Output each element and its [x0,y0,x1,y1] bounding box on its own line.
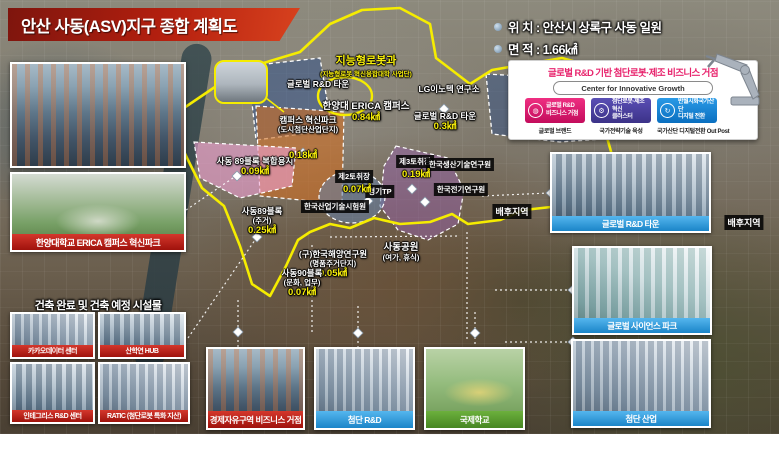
facility-photo-kakao: 카카오데이터 센터 [10,312,95,359]
label-kitech: 한국생산기술연구원 [426,158,494,171]
label-text: 캠퍼스 혁신파크 [279,115,336,125]
label-sub: (문화, 업무) [282,278,323,287]
area-row: 면 적 : 1.66㎢ [494,39,662,58]
location-row: 위 치 : 안산시 상록구 사동 일원 [494,17,662,36]
photo-caption: 글로벌 사이언스 파크 [574,318,710,333]
label-sub: (주거) [242,216,283,225]
vision-box-label: 글로벌 R&D 비즈니스 거점 [546,103,578,118]
photo-caption: 인테그리스 R&D 센터 [12,410,93,422]
economic-zone-photo: 경제자유구역 비즈니스 거점 [206,347,305,430]
vision-card: 글로벌 R&D 기반 첨단로봇·제조 비즈니스 거점 Center for In… [508,60,758,140]
advanced-rd-photo: 첨단 R&D [314,347,415,430]
harbor-photo [10,62,186,168]
vision-sublabel: 국가전략기술 육성 [591,126,651,135]
label-pit2-area: 0.07㎢ [343,181,371,195]
vision-sublabel: 글로벌 브랜드 [525,126,585,135]
label-robot-dept: 지능형로봇과 (지능형로봇 혁신융합대학 사업단) [320,52,412,78]
label-text: 지능형로봇과 [336,55,397,67]
photo-caption: 한양대학교 ERICA 캠퍼스 혁신파크 [12,234,184,250]
label-text: 사동90블록 [282,268,323,278]
photo-caption: 글로벌 R&D 타운 [552,216,709,231]
advanced-industry-photo: 첨단 산업 [571,339,711,428]
label-text: 글로벌 R&D 타운 [287,79,349,89]
photo-caption: 경제자유구역 비즈니스 거점 [208,411,303,428]
label-block90: 사동90블록 (문화, 업무) 0.07㎢ [282,268,323,299]
vision-sublabel: 국가산단 디지털전환 Out Post [657,126,717,135]
vision-box-label: 첨단로봇·제조혁신 클러스터 [612,99,648,122]
vision-box-label-line2: 디지털 전환 [678,114,705,120]
label-block89-res: 사동89블록 (주거) 0.25㎢ [242,206,283,237]
label-area: 0.3㎢ [414,121,476,132]
label-campus-park: 캠퍼스 혁신파크 (도시첨단산업단지) [278,115,338,134]
vision-card-badge: Center for Innovative Growth [553,81,713,95]
photo-caption: 국제학교 [426,411,523,428]
photo-caption: 첨단 산업 [573,411,709,426]
global-science-park-photo: 글로벌 사이언스 파크 [572,246,712,335]
international-school-photo: 국제학교 [424,347,525,430]
label-global-rd-town-nw: 글로벌 R&D 타운 [287,79,349,89]
label-text: 사동 89블록 복합용지 [217,156,294,166]
vision-box-global-rd: ◍ 글로벌 R&D 비즈니스 거점 [525,98,585,123]
global-rd-town-photo: 글로벌 R&D 타운 [550,152,711,233]
industrial-robot-icon [697,51,763,109]
label-pit3-area: 0.19㎢ [402,166,430,180]
label-keri: 한국전기연구원 [434,183,488,196]
label-sub: (명품주거단지) [299,259,367,268]
label-sub: (지능형로봇 혁신융합대학 사업단) [320,68,412,78]
photo-caption: 카카오데이터 센터 [12,345,93,357]
title-banner: 안산 사동(ASV)지구 종합 계획도 [8,8,300,41]
label-hinterland-mid: 배후지역 [492,204,531,219]
location-bullet-icon [494,23,502,31]
area-text: 면 적 : 1.66㎢ [508,39,577,58]
label-text: LG이노텍 연구소 [418,84,479,94]
label-ktl: 한국산업기술시험원 [301,200,369,213]
area-bullet-icon [494,45,502,53]
label-block89-mixed: 사동 89블록 복합용지 0.09㎢ [217,156,294,178]
label-area: 0.25㎢ [242,225,283,236]
label-text: 사동공원 [384,242,419,253]
vision-card-sublabels: 글로벌 브랜드 국가전략기술 육성 국가산단 디지털전환 Out Post [509,126,757,135]
facility-photo-hub: 산학연 HUB [98,312,186,359]
facilities-section-title: 건축 완료 및 건축 예정 시설물 [10,297,186,313]
photo-caption: 산학연 HUB [100,345,184,357]
label-lg-innotek: LG이노텍 연구소 [418,84,479,94]
page-title: 안산 사동(ASV)지구 종합 계획도 [21,13,237,37]
location-text: 위 치 : 안산시 상록구 사동 일원 [508,17,662,36]
label-text: 사동89블록 [242,206,283,216]
facility-photo-entegris: 인테그리스 R&D 센터 [10,362,95,424]
photo-caption: 첨단 R&D [316,411,413,428]
label-sadong-park: 사동공원 (여가, 휴식) [383,242,420,262]
station-inset-photo [214,60,268,104]
vision-box-label-line2: 클러스터 [612,114,632,120]
vision-box-label-line2: 비즈니스 거점 [546,111,578,117]
robot-arm-icon: ⚙ [594,103,609,118]
photo-caption: RATIC (첨단로봇 특화 지산) [100,410,188,422]
location-info: 위 치 : 안산시 상록구 사동 일원 면 적 : 1.66㎢ [494,17,662,61]
facility-photo-ratic: RATIC (첨단로봇 특화 지산) [98,362,190,424]
label-area: 0.07㎢ [282,287,323,298]
label-global-rd-town-e: 글로벌 R&D 타운 0.3㎢ [414,111,476,133]
label-area: 0.09㎢ [217,166,294,177]
digital-transform-icon: ↻ [660,103,675,118]
plan-slide: 안산 사동(ASV)지구 종합 계획도 위 치 : 안산시 상록구 사동 일원 … [0,0,779,449]
vision-box-label-line1: 첨단로봇·제조혁신 [612,99,644,113]
label-campus-park-area: 0.18㎢ [289,147,317,161]
label-sub: (여가, 휴식) [383,253,420,262]
label-text: (구)한국해양연구원 [299,249,367,259]
label-hinterland-right: 배후지역 [724,215,763,230]
vision-box-robot-cluster: ⚙ 첨단로봇·제조혁신 클러스터 [591,98,651,123]
vision-box-label-line1: 글로벌 R&D [546,103,574,109]
label-text: 한양대 ERICA 캠퍼스 [323,101,410,112]
globe-icon: ◍ [528,103,543,118]
label-sub: (도시첨단산업단지) [278,125,338,134]
erica-innovation-park-photo: 한양대학교 ERICA 캠퍼스 혁신파크 [10,172,186,252]
label-text: 글로벌 R&D 타운 [414,111,476,121]
